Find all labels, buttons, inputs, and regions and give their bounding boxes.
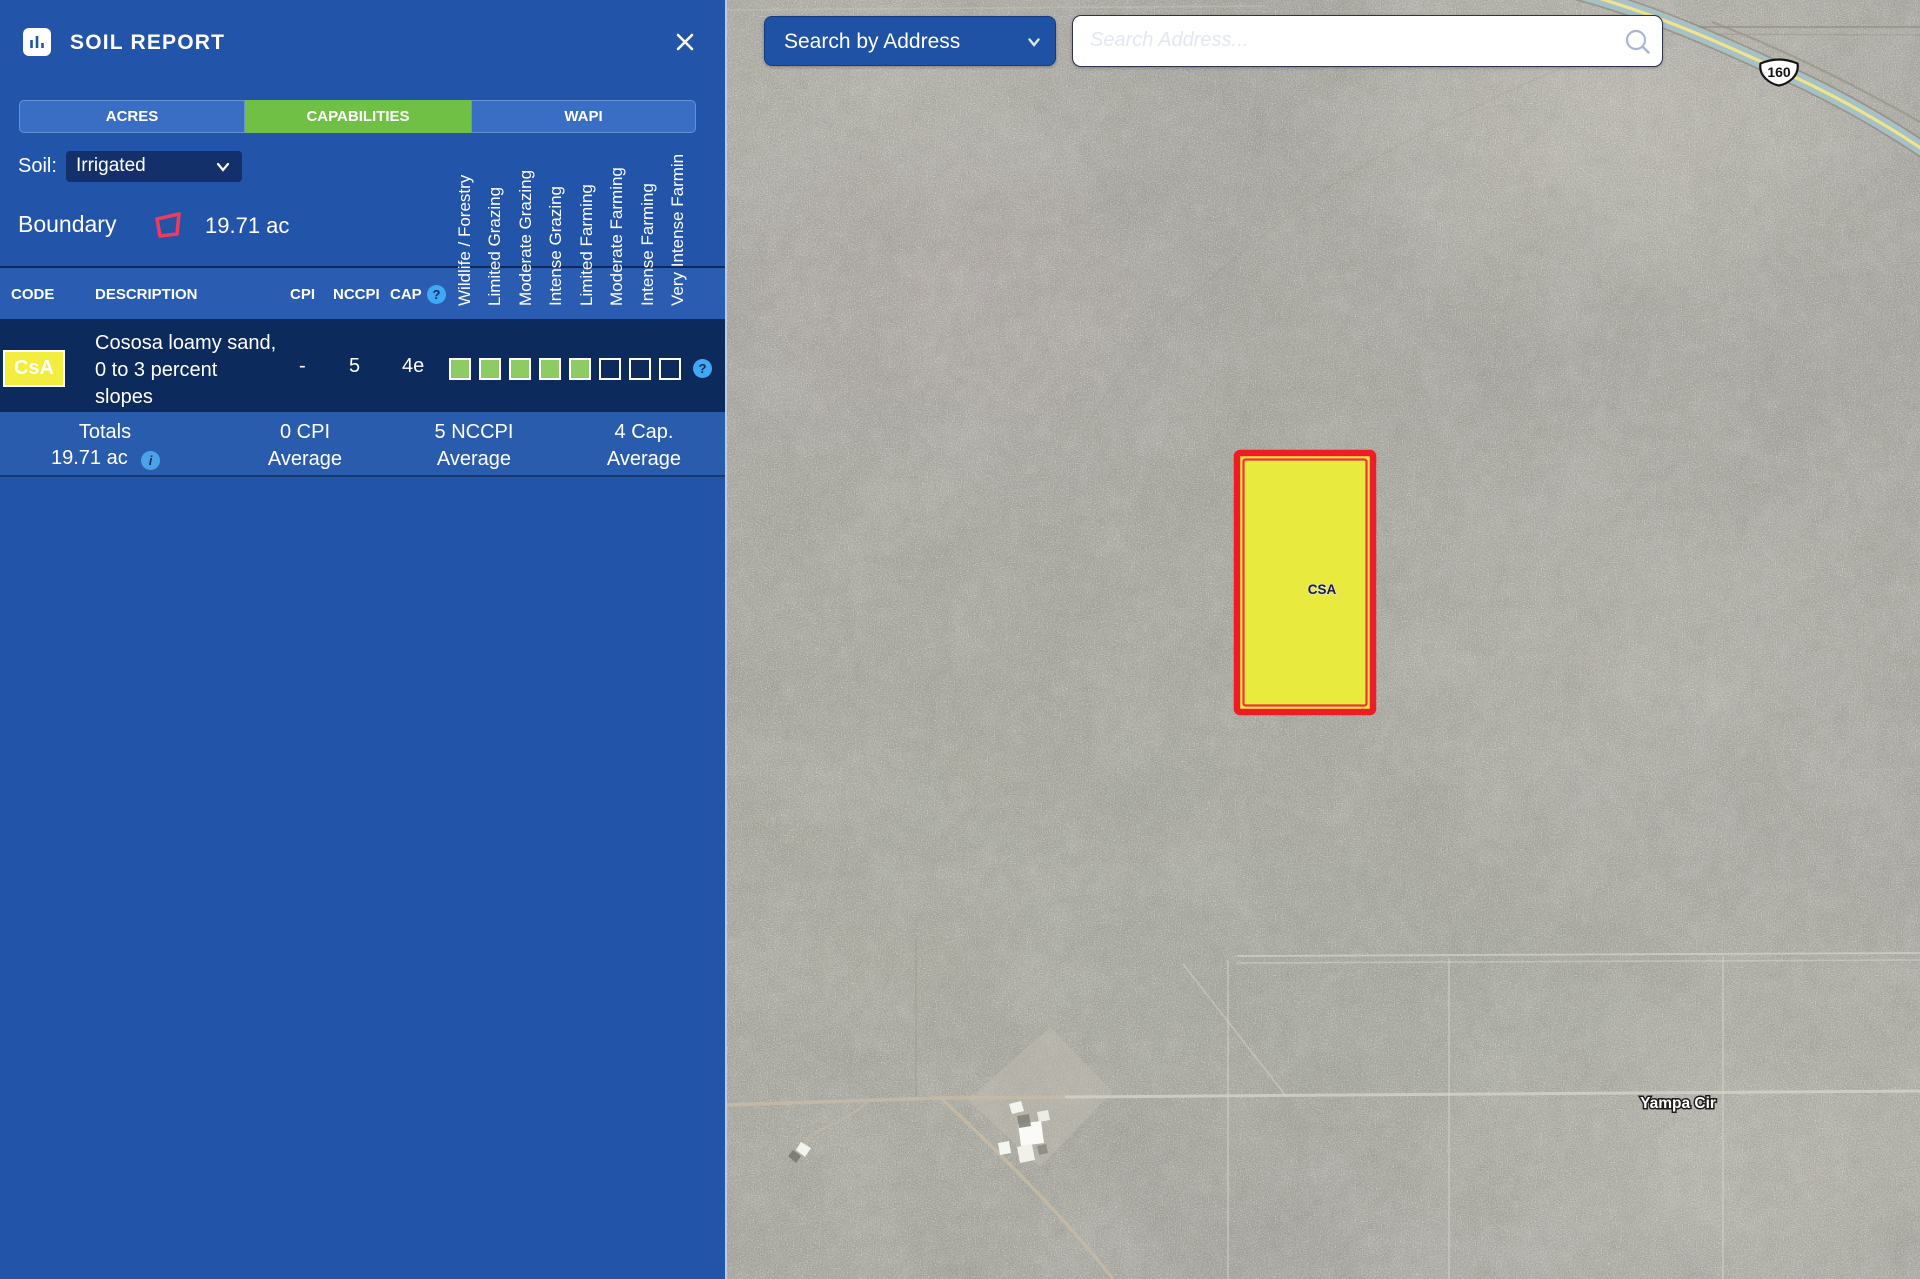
svg-text:CSA: CSA	[1308, 582, 1337, 597]
svg-text:160: 160	[1767, 64, 1791, 80]
svg-text:Yampa Cir: Yampa Cir	[1640, 1095, 1716, 1112]
